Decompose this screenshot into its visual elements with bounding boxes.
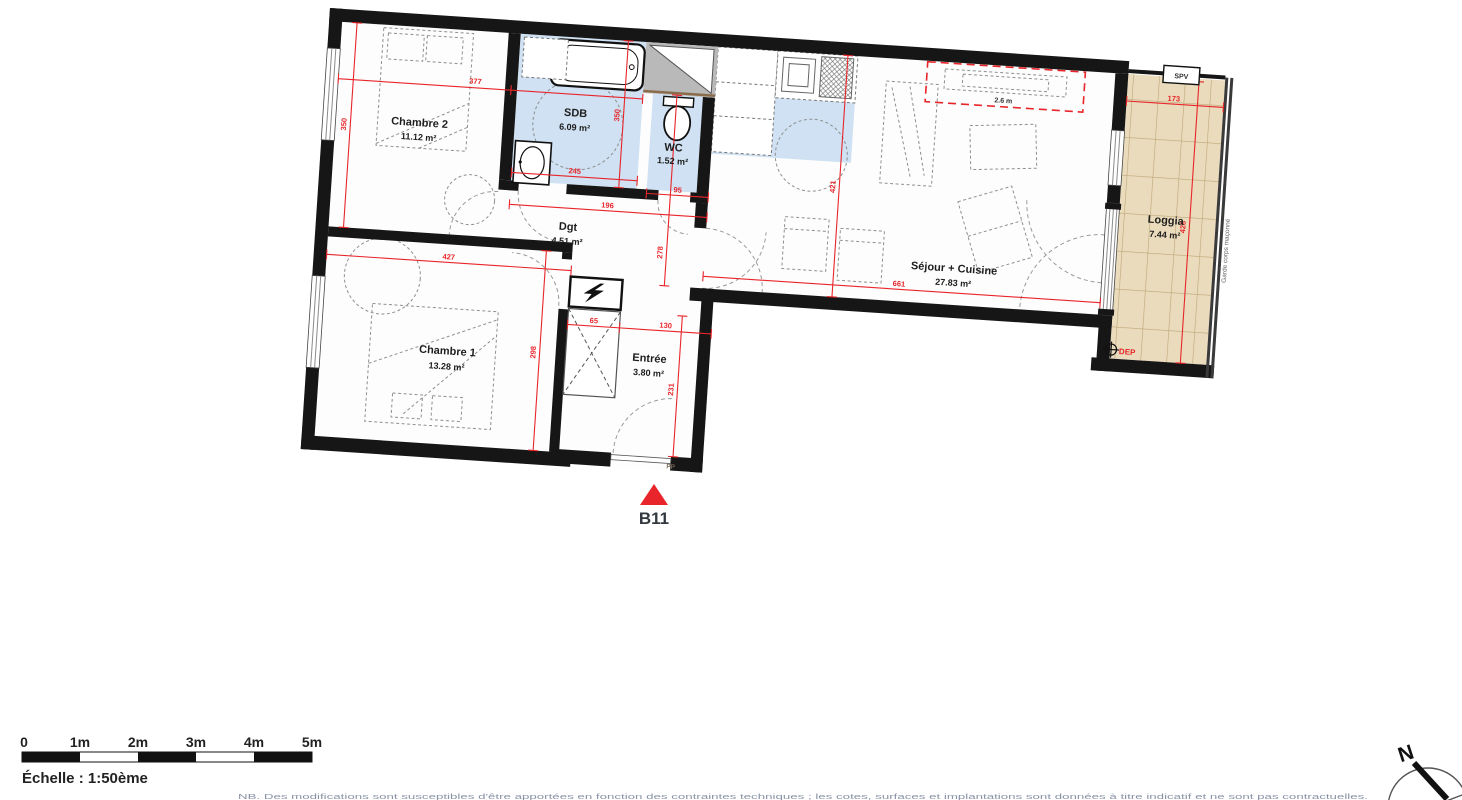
wall-wc-bottom — [690, 192, 709, 203]
scale-bar: 0 1m 2m 3m 4m 5m Échelle : 1:50ème — [20, 734, 322, 787]
room-label-entree: Entrée — [632, 352, 667, 366]
scale-tick-1: 1m — [70, 734, 90, 750]
kitchen-length-label: 2.6 m — [994, 97, 1012, 105]
electrical-panel — [569, 277, 623, 310]
dim-label: 427 — [442, 252, 455, 262]
dim-label: 65 — [589, 316, 598, 326]
bay-end-cap — [1098, 309, 1114, 316]
room-area-entree: 3.80 m² — [633, 367, 665, 379]
dim-label: 130 — [659, 321, 672, 331]
entrance-arrow-icon — [640, 484, 668, 505]
scale-tick-0: 0 — [20, 734, 28, 750]
unit-label: B11 — [639, 509, 669, 528]
scale-tick-5: 5m — [302, 734, 322, 750]
room-label-sdb: SDB — [564, 107, 588, 121]
hob-icon — [819, 57, 854, 99]
room-area-loggia: 7.44 m² — [1149, 229, 1181, 241]
room-label-loggia: Loggia — [1147, 214, 1185, 228]
dim-label: 377 — [469, 76, 482, 86]
scale-tick-4: 4m — [244, 734, 264, 750]
washbasin-icon — [513, 141, 552, 185]
dep-label: DEP — [1119, 347, 1137, 357]
compass: N — [1388, 741, 1462, 800]
dim-label: 245 — [568, 166, 581, 176]
scale-segment — [138, 752, 196, 762]
dim-label: 350 — [612, 109, 622, 122]
spv-label: SPV — [1174, 73, 1189, 81]
scale-tick-2: 2m — [128, 734, 148, 750]
room-label-wc: WC — [664, 141, 683, 154]
dim-label: 173 — [1167, 94, 1180, 104]
dim-label: 278 — [655, 246, 665, 259]
dim-label: 661 — [892, 279, 905, 289]
dim-label: 350 — [339, 118, 349, 131]
dim-label: 421 — [828, 180, 838, 193]
entrance-marker: B11 — [639, 484, 669, 528]
kitchen-counter-left — [711, 47, 778, 156]
floor-plan-canvas: 377 350 245 350 95 196 — [0, 0, 1462, 800]
dim-label: 95 — [673, 185, 682, 195]
technical-duct — [643, 42, 718, 98]
washing-machine-icon — [522, 37, 569, 80]
scale-tick-3: 3m — [186, 734, 206, 750]
bay-end-cap — [1105, 203, 1121, 210]
room-label-dgt: Dgt — [558, 221, 577, 234]
scale-caption: Échelle : 1:50ème — [22, 770, 148, 787]
washing-machine-box — [522, 37, 569, 80]
wall-sejour-loggia-b — [1107, 185, 1121, 204]
floor-plan-page: 377 350 245 350 95 196 — [0, 0, 1462, 800]
room-area-sdb: 6.09 m² — [559, 121, 591, 133]
dim-label: 298 — [528, 346, 538, 359]
scale-segment — [22, 752, 80, 762]
room-area-wc: 1.52 m² — [657, 155, 689, 167]
dim-label: 231 — [666, 383, 676, 396]
room-area-dgt: 4.51 m² — [551, 235, 583, 247]
wall-dgt-sejour — [694, 203, 708, 229]
north-label: N — [1395, 741, 1417, 768]
disclaimer-footnote: NB. Des modifications sont susceptibles … — [238, 794, 1368, 800]
dim-label: 196 — [601, 200, 614, 210]
apartment-plan: 377 350 245 350 95 196 — [301, 8, 1242, 510]
scale-segment — [254, 752, 312, 762]
wall-chambre1-right-a — [562, 252, 572, 260]
lower-floor — [301, 226, 715, 473]
pp-label: PP — [666, 463, 676, 471]
